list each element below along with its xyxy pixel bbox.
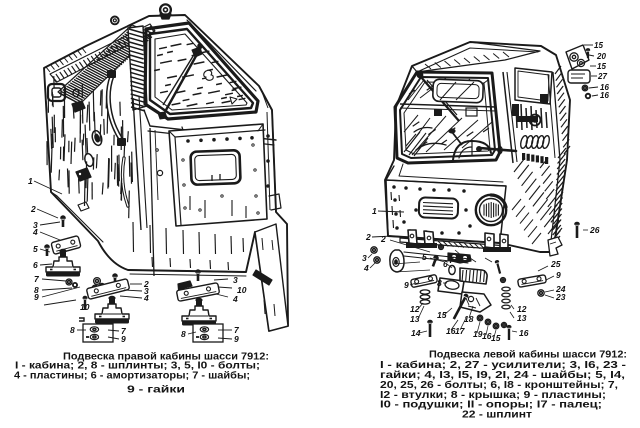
svg-text:16: 16	[600, 91, 609, 100]
svg-text:2: 2	[30, 204, 36, 214]
svg-text:9 - гайки: 9 - гайки	[127, 385, 185, 396]
svg-text:6: 6	[33, 260, 38, 270]
svg-text:1: 1	[372, 206, 377, 216]
svg-text:8: 8	[437, 278, 442, 288]
svg-text:10: 10	[237, 285, 247, 295]
svg-text:15: 15	[491, 333, 501, 343]
svg-text:20: 20	[596, 52, 606, 61]
svg-text:2: 2	[380, 234, 386, 244]
svg-text:13: 13	[517, 313, 527, 323]
svg-text:15: 15	[437, 310, 447, 320]
svg-text:9: 9	[556, 270, 561, 280]
svg-text:16: 16	[519, 328, 529, 338]
svg-text:23: 23	[555, 292, 566, 302]
svg-text:2: 2	[365, 232, 371, 242]
svg-text:4: 4	[143, 293, 149, 303]
svg-text:15: 15	[594, 41, 603, 50]
svg-text:15: 15	[597, 62, 606, 71]
svg-text:26: 26	[589, 225, 600, 235]
svg-text:25: 25	[550, 259, 561, 269]
svg-text:9: 9	[121, 334, 126, 344]
svg-text:4: 4	[32, 227, 38, 237]
svg-text:17: 17	[455, 326, 466, 336]
svg-text:3: 3	[362, 253, 367, 263]
svg-text:9: 9	[404, 280, 409, 290]
svg-text:4: 4	[232, 294, 238, 304]
svg-text:1: 1	[28, 176, 33, 186]
svg-text:8: 8	[70, 325, 75, 335]
svg-text:5: 5	[33, 244, 38, 254]
svg-text:Подвеска левой кабины шасси 79: Подвеска левой кабины шасси 7912:	[429, 349, 627, 361]
svg-text:4 - пластины; 6 - амортизаторы: 4 - пластины; 6 - амортизаторы; 7 - шайб…	[14, 370, 250, 382]
svg-text:3: 3	[233, 275, 238, 285]
svg-text:27: 27	[597, 72, 607, 81]
svg-text:8: 8	[181, 329, 186, 339]
svg-text:22 - шплинт: 22 - шплинт	[462, 410, 532, 421]
svg-text:9: 9	[34, 292, 39, 302]
svg-text:4: 4	[363, 263, 369, 273]
svg-text:9: 9	[234, 334, 239, 344]
